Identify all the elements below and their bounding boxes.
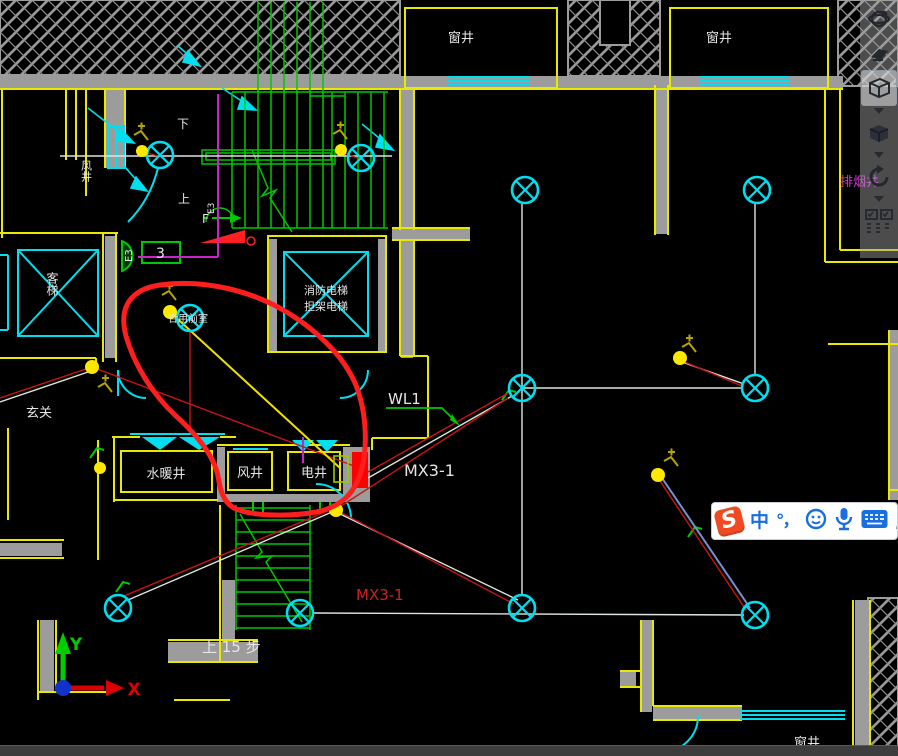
ucs-icon: Y X: [55, 632, 141, 700]
label-passenger-elevator: 客梯: [45, 271, 59, 296]
gray-wall-bands: [0, 76, 898, 745]
label-window-well-left: 窗井: [448, 30, 474, 46]
microphone-icon[interactable]: [834, 507, 854, 535]
circuit-wires: [0, 152, 755, 615]
label-stair-note: 上 15 步: [202, 638, 261, 656]
label-window-well-right: 窗井: [706, 30, 732, 46]
label-box-3: 3: [156, 246, 165, 262]
label-e3: E3: [124, 249, 135, 262]
hatched-wall-bottom-right: [868, 598, 898, 746]
label-f: F: [202, 212, 209, 226]
chevron-down-icon[interactable]: [874, 108, 884, 114]
wl1-leader: [386, 408, 460, 426]
rotate-view-icon-button[interactable]: [862, 160, 896, 194]
sogou-logo-icon[interactable]: S: [713, 505, 746, 538]
chevron-down-icon[interactable]: [874, 152, 884, 158]
punctuation-button[interactable]: °，: [776, 513, 798, 530]
cyan-triangles: [88, 46, 393, 452]
ucs-y-label: Y: [69, 635, 83, 655]
wireframe-box-icon-button[interactable]: [861, 70, 897, 106]
chevron-down-icon[interactable]: [874, 196, 884, 202]
label-air-shaft-mid: 风井: [237, 466, 263, 481]
drawing-area-bottom-edge: [0, 745, 898, 756]
label-mx31: MX3-1: [404, 461, 455, 480]
label-wl1: WL1: [388, 390, 421, 408]
label-entrance: 玄关: [26, 406, 52, 421]
chinese-mode-button[interactable]: 中: [750, 512, 769, 531]
label-stretcher-elevator: 担架电梯: [304, 299, 348, 313]
solid-box-icon-button[interactable]: [862, 116, 896, 150]
show-motion-icon-button[interactable]: [862, 204, 896, 238]
orbit-icon-button[interactable]: [862, 2, 896, 36]
emoji-icon[interactable]: [805, 508, 827, 534]
label-down: 下: [177, 117, 189, 131]
label-mx31-red: MX3-1: [356, 586, 404, 604]
cyan-architecture: [0, 77, 845, 752]
label-air-shaft-left: 风井: [80, 160, 93, 183]
label-electrical-shaft: 电井: [301, 466, 327, 481]
navigation-bar: [860, 0, 898, 258]
toolbox-icon[interactable]: [895, 508, 898, 534]
ime-toolbar: S 中 °，: [711, 502, 898, 540]
label-plumbing-shaft: 水暖井: [146, 467, 185, 482]
cad-drawing-canvas[interactable]: 窗井 窗井 窗井 排烟井 风井 客梯 消防电梯 担架电梯 合用前室 玄关 水暖井…: [0, 0, 898, 756]
soft-keyboard-icon[interactable]: [861, 509, 888, 533]
label-fire-elevator: 消防电梯: [304, 283, 348, 297]
swivel-view-icon-button[interactable]: [862, 36, 896, 70]
label-shared-lobby: 合用前室: [168, 312, 208, 325]
ucs-x-label: X: [127, 680, 140, 700]
label-up: 上: [178, 192, 190, 206]
floor-plan: 窗井 窗井 窗井 排烟井 风井 客梯 消防电梯 担架电梯 合用前室 玄关 水暖井…: [0, 0, 898, 756]
